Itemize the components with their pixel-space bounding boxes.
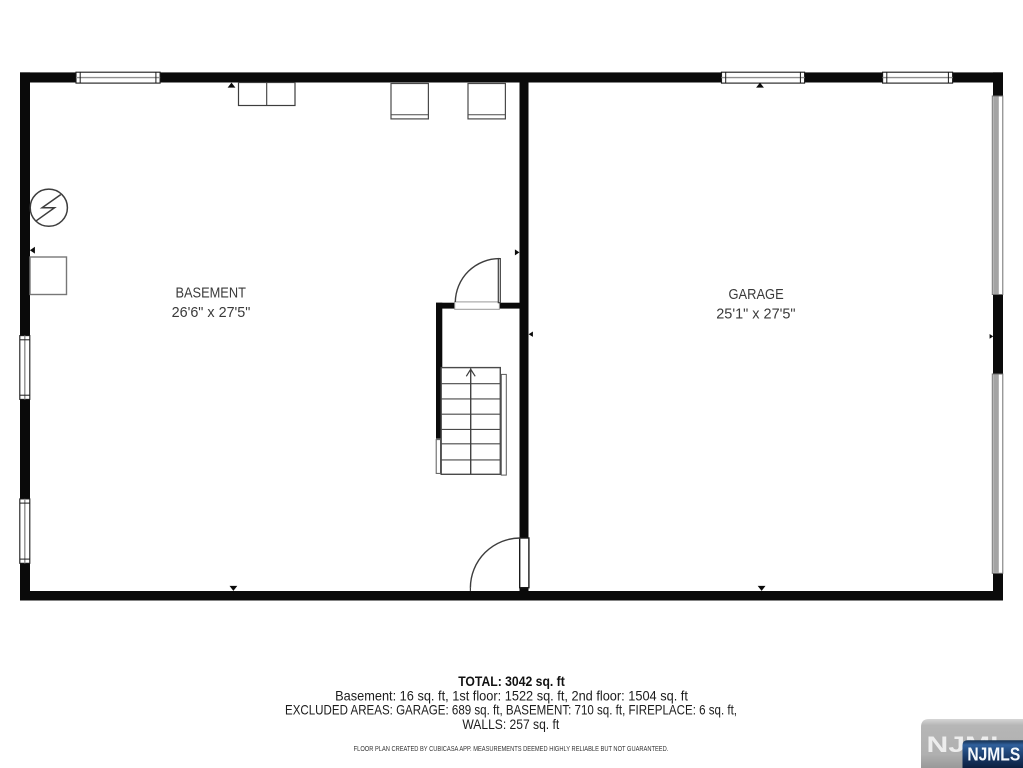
- svg-text:25'1" x 27'5": 25'1" x 27'5": [716, 305, 795, 322]
- svg-text:NJMLS: NJMLS: [967, 745, 1020, 765]
- svg-text:WALLS: 257 sq. ft: WALLS: 257 sq. ft: [462, 716, 559, 732]
- svg-text:26'6" x 27'5": 26'6" x 27'5": [172, 304, 251, 321]
- svg-text:BASEMENT: BASEMENT: [175, 284, 246, 301]
- svg-text:FLOOR PLAN CREATED BY CUBICASA: FLOOR PLAN CREATED BY CUBICASA APP. MEAS…: [354, 746, 669, 753]
- svg-text:GARAGE: GARAGE: [729, 286, 784, 303]
